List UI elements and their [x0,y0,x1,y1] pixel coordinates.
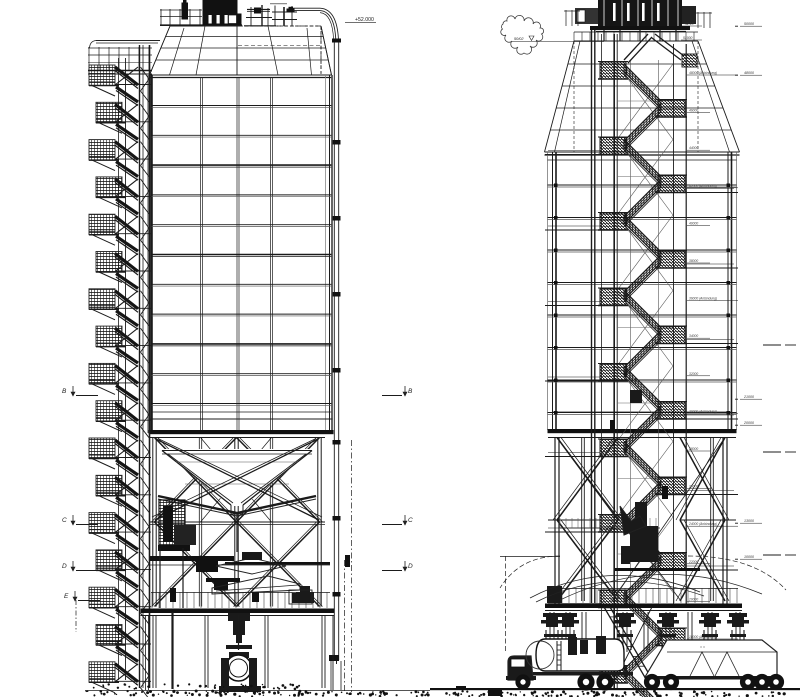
svg-text:46000: 46000 [689,109,698,113]
svg-text:10000: 10000 [744,555,754,559]
svg-text:+52.10: +52.10 [683,22,694,26]
svg-text:20000: 20000 [688,597,698,601]
svg-text:48000 (Anbindung): 48000 (Anbindung) [689,71,717,75]
svg-text:C: C [62,517,67,524]
svg-text:20000: 20000 [743,421,754,425]
svg-text:21000: 21000 [743,395,754,399]
svg-text:D: D [408,563,413,570]
svg-text:13000: 13000 [744,519,754,523]
svg-text:38000: 38000 [689,259,698,263]
svg-text:E: E [64,593,69,600]
svg-text:42000 (Anbindung): 42000 (Anbindung) [689,184,717,188]
svg-text:40000: 40000 [689,221,698,225]
svg-text:= =: = = [700,645,705,649]
svg-text:48000: 48000 [744,71,754,75]
svg-text:C: C [408,517,413,524]
svg-text:50/02: 50/02 [514,37,524,41]
svg-text:D: D [62,563,67,570]
svg-text:32000: 32000 [689,372,698,376]
svg-text:34000: 34000 [689,334,698,338]
svg-text:B: B [62,388,67,395]
svg-text:B: B [408,388,413,395]
svg-text:24000 (Anbindung): 24000 (Anbindung) [688,522,717,526]
svg-text:44000: 44000 [689,146,698,150]
svg-text:36000 (Anbindung): 36000 (Anbindung) [689,297,717,301]
svg-text:51000: 51000 [683,36,693,40]
svg-text:30000 (Anbindung): 30000 (Anbindung) [689,409,717,413]
svg-text:50000: 50000 [744,22,754,26]
